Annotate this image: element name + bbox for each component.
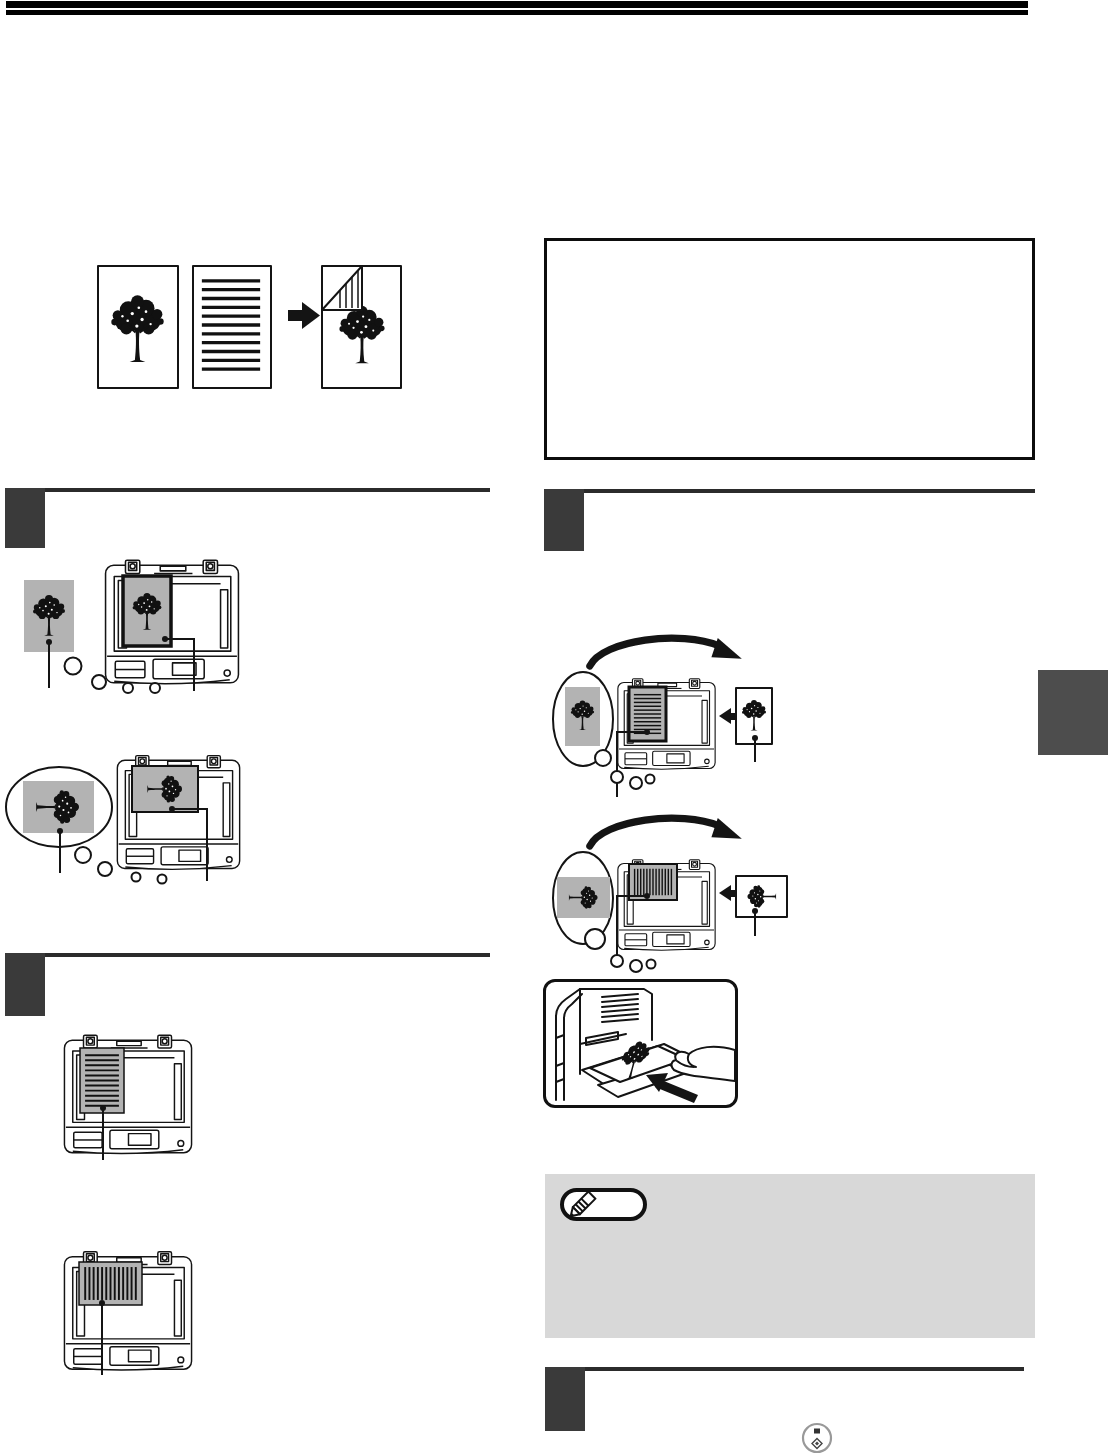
turn-over-arrow-icon [590, 818, 742, 846]
original-sheet [557, 877, 610, 918]
orientation-portrait-illustration [50, 1020, 210, 1165]
callout-circle [585, 929, 605, 949]
turn-over-arrow-icon [590, 638, 742, 666]
callout-circle [611, 771, 623, 783]
section-rule-3 [544, 489, 1035, 493]
callout-circle [75, 847, 91, 863]
turn-over-portrait-illustration [545, 625, 800, 805]
note-box [545, 1174, 1035, 1338]
hand [672, 1047, 735, 1081]
turn-over-landscape-illustration [545, 805, 800, 990]
original-on-glass [123, 576, 171, 646]
callout-circle [647, 960, 656, 969]
step-number-block-3 [544, 489, 584, 551]
callout-circle [595, 750, 611, 766]
pencil-icon [566, 1192, 610, 1218]
place-original-landscape-illustration [0, 745, 260, 895]
step-number-block-2 [5, 953, 45, 1016]
note-badge [560, 1188, 647, 1221]
original-page-tree [98, 266, 178, 388]
section-rule-2 [5, 953, 490, 957]
original-on-glass [629, 864, 677, 900]
header-bar-top [6, 1, 1028, 8]
callout-circle [158, 875, 167, 884]
original-on-glass [80, 1048, 124, 1113]
info-box [544, 238, 1035, 460]
step-number-block-4 [545, 1367, 585, 1431]
callout-circle [132, 873, 141, 882]
two-sided-copy-example-illustration [90, 260, 410, 395]
callout-circle [92, 675, 106, 689]
callout-circle [65, 658, 82, 675]
callout-circle [630, 960, 642, 972]
section-rule-1 [5, 488, 490, 492]
original-sheet [23, 781, 94, 833]
transform-arrow-icon [288, 302, 320, 329]
place-original-portrait-illustration [15, 550, 260, 700]
callout-circle [646, 775, 655, 784]
manual-page [0, 0, 1111, 1455]
step-number-block-1 [5, 488, 45, 548]
header-bar-bottom [6, 10, 1028, 15]
original-on-glass [79, 1262, 142, 1305]
chapter-side-tab [1038, 670, 1108, 755]
original-sheet [565, 687, 600, 746]
orientation-landscape-illustration [50, 1240, 210, 1380]
original-on-glass [132, 766, 198, 812]
callout-circle [123, 683, 133, 693]
callout-circle [98, 862, 112, 876]
bypass-tray-illustration [543, 979, 738, 1108]
callout-circle [630, 777, 642, 789]
callout-circle [611, 955, 623, 967]
original-page-text [193, 266, 271, 388]
callout-circle [150, 683, 160, 693]
section-rule-4 [545, 1367, 1024, 1371]
copy-sheet [736, 876, 787, 917]
start-key-icon [800, 1421, 834, 1455]
two-sided-copy-page [322, 266, 401, 388]
